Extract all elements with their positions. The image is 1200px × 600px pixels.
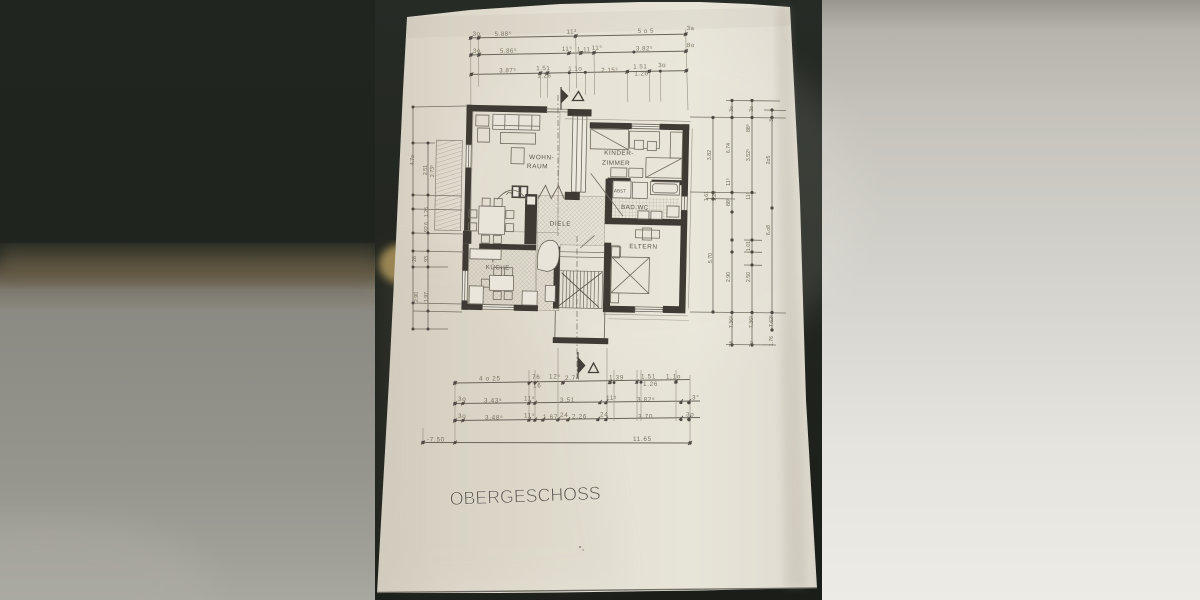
svg-text:BAD.WC: BAD.WC <box>621 204 649 212</box>
svg-text:3.51: 3.51 <box>560 397 575 404</box>
svg-text:1.26: 1.26 <box>643 381 658 388</box>
svg-text:11³: 11³ <box>567 29 577 36</box>
svg-text:5.70: 5.70 <box>708 253 714 263</box>
svg-text:1.61: 1.61 <box>704 191 710 201</box>
svg-text:2.90: 2.90 <box>414 292 420 302</box>
svg-text:8o: 8o <box>687 42 695 49</box>
svg-text:1.51: 1.51 <box>641 374 656 381</box>
svg-text:4 o 25: 4 o 25 <box>479 376 501 383</box>
svg-text:1.51: 1.51 <box>536 65 550 72</box>
svg-text:11.65: 11.65 <box>633 436 652 443</box>
svg-text:2.51: 2.51 <box>423 165 429 175</box>
svg-text:3o: 3o <box>749 106 755 112</box>
svg-text:KINDER-: KINDER- <box>604 150 634 158</box>
svg-text:3.82⁵: 3.82⁵ <box>637 397 655 404</box>
svg-text:16: 16 <box>533 383 541 390</box>
svg-text:3a: 3a <box>686 25 694 32</box>
svg-text:3o: 3o <box>686 412 694 419</box>
svg-text:3o: 3o <box>769 116 775 122</box>
svg-text:11⁵: 11⁵ <box>524 396 535 403</box>
svg-text:1.67: 1.67 <box>543 414 558 421</box>
svg-text:12⁵: 12⁵ <box>549 374 561 381</box>
svg-text:-7.50: -7.50 <box>427 437 445 444</box>
svg-text:3o: 3o <box>749 341 755 347</box>
svg-text:92.6: 92.6 <box>424 222 430 232</box>
svg-text:ELTERN: ELTERN <box>629 243 657 251</box>
svg-text:3.43⁵: 3.43⁵ <box>484 398 502 405</box>
svg-text:11⁵: 11⁵ <box>562 46 573 53</box>
svg-text:2.50: 2.50 <box>746 272 752 282</box>
svg-text:24: 24 <box>729 341 735 347</box>
svg-text:1.76: 1.76 <box>769 336 775 346</box>
svg-text:3.82: 3.82 <box>707 150 713 160</box>
svg-text:24: 24 <box>560 412 568 419</box>
svg-text:3o: 3o <box>458 396 466 403</box>
svg-text:2o5: 2o5 <box>766 156 772 165</box>
svg-text:3.48⁵: 3.48⁵ <box>485 415 503 422</box>
svg-text:1.26: 1.26 <box>634 70 648 77</box>
svg-text:11⁵: 11⁵ <box>592 45 603 52</box>
svg-text:3o: 3o <box>729 106 735 112</box>
svg-text:2.90: 2.90 <box>726 272 732 282</box>
svg-text:88⁵: 88⁵ <box>746 124 752 132</box>
svg-text:7.36⁵: 7.36⁵ <box>729 316 735 328</box>
svg-text:1.1o: 1.1o <box>568 65 582 72</box>
svg-text:93: 93 <box>424 256 430 262</box>
svg-text:ABST: ABST <box>614 188 626 193</box>
svg-text:4.7o: 4.7o <box>410 155 416 165</box>
svg-text:DIELE: DIELE <box>550 220 572 227</box>
svg-text:1.26: 1.26 <box>537 73 551 80</box>
svg-text:ZIMMER: ZIMMER <box>602 160 630 168</box>
svg-text:3o: 3o <box>458 413 466 420</box>
svg-text:11⁵: 11⁵ <box>606 395 617 402</box>
svg-text:1.01: 1.01 <box>746 241 752 251</box>
svg-text:3o: 3o <box>473 31 481 38</box>
svg-text:3.87⁵: 3.87⁵ <box>499 67 516 74</box>
svg-text:5 o 5: 5 o 5 <box>638 28 654 35</box>
svg-text:6.74: 6.74 <box>726 143 732 153</box>
svg-text:3°: 3° <box>692 394 699 402</box>
svg-text:3.52⁵: 3.52⁵ <box>746 149 752 161</box>
svg-text:1.1o: 1.1o <box>666 374 681 381</box>
svg-text:76: 76 <box>532 374 540 381</box>
svg-text:3.82⁵: 3.82⁵ <box>636 45 653 52</box>
svg-text:5.86⁵: 5.86⁵ <box>500 48 517 55</box>
svg-text:7.36⁵: 7.36⁵ <box>749 316 755 328</box>
svg-text:11⁵: 11⁵ <box>726 178 732 186</box>
svg-text:WOHN-: WOHN- <box>529 154 555 162</box>
svg-text:28: 28 <box>412 256 418 262</box>
svg-text:1.11: 1.11 <box>577 46 591 53</box>
svg-text:1.26: 1.26 <box>424 207 430 217</box>
svg-text:1.97: 1.97 <box>424 292 430 302</box>
svg-text:1.26: 1.26 <box>712 191 718 201</box>
svg-text:3o: 3o <box>658 62 666 69</box>
svg-text:2.73⁵: 2.73⁵ <box>430 165 436 177</box>
svg-text:2.26: 2.26 <box>572 414 587 421</box>
svg-text:RAUM: RAUM <box>527 163 548 170</box>
svg-text:3o: 3o <box>473 48 481 55</box>
svg-text:11⁵: 11⁵ <box>746 192 752 200</box>
svg-text:2.15⁵: 2.15⁵ <box>601 67 618 74</box>
svg-text:6.o8: 6.o8 <box>766 225 772 235</box>
svg-text:7.62⁵: 7.62⁵ <box>769 315 775 327</box>
svg-text:3.70: 3.70 <box>638 414 653 421</box>
svg-text:5.88⁵: 5.88⁵ <box>495 31 512 38</box>
svg-text:2.74: 2.74 <box>565 375 580 382</box>
svg-text:88⁵: 88⁵ <box>726 198 732 206</box>
